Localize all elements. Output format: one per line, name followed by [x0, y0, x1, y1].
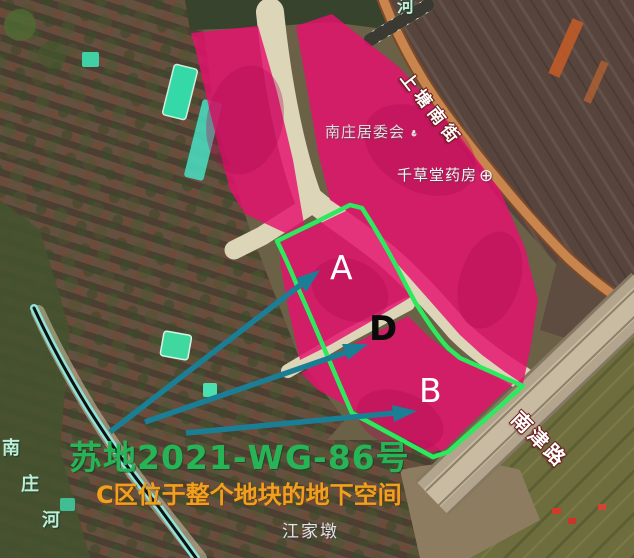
committee-name: 南庄居委会	[325, 123, 405, 141]
zone-b-label: B	[419, 374, 442, 407]
river-label-top-partial: 河	[397, 0, 414, 17]
pharmacy-name: 千草堂药房	[397, 166, 477, 184]
committee-separator-dot: ·	[411, 123, 418, 141]
parcel-code-label: 苏地2021-WG-86号	[69, 441, 410, 474]
underground-note-label: C区位于整个地块的地下空间	[96, 483, 402, 507]
annotated-satellite-map: 南庄居委会· 千草堂药房⊕ 江家墩 上塘南街 南津路 南 庄 河 河 A D B…	[0, 0, 634, 558]
circle-plus-icon: ⊕	[479, 166, 494, 186]
committee-label: 南庄居委会·	[325, 125, 418, 140]
river-label-char-2: 庄	[21, 470, 39, 496]
river-label-char-1: 南	[2, 434, 20, 460]
zone-d-label: D	[369, 312, 397, 346]
village-label: 江家墩	[282, 524, 339, 541]
river-label-char-3: 河	[42, 506, 60, 532]
pharmacy-label: 千草堂药房⊕	[397, 168, 494, 185]
zone-a-label: A	[330, 251, 353, 284]
